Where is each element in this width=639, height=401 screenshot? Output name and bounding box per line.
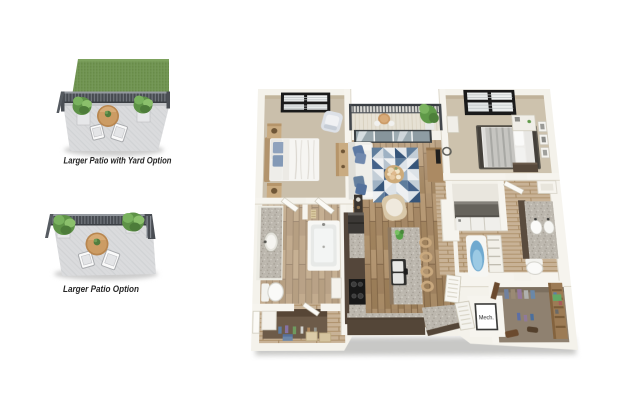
- svg-text:Mech.: Mech.: [479, 315, 494, 321]
- svg-text:Larger Patio with Yard Option: Larger Patio with Yard Option: [64, 156, 172, 167]
- svg-text:Larger Patio Option: Larger Patio Option: [63, 284, 139, 295]
